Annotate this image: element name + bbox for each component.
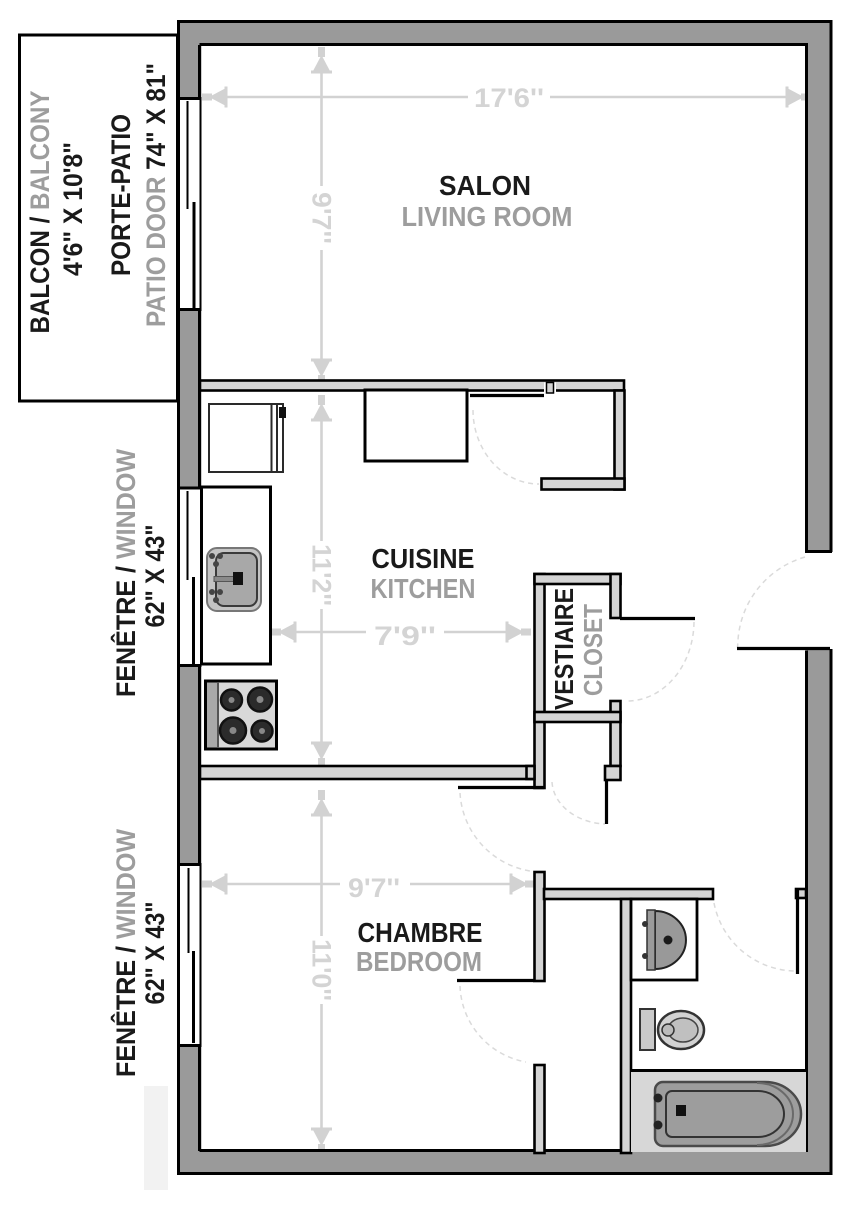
svg-text:PORTE-PATIO: PORTE-PATIO <box>106 114 136 276</box>
svg-text:11'2'': 11'2'' <box>307 544 337 606</box>
svg-text:FENÊTRE / WINDOW: FENÊTRE / WINDOW <box>110 829 141 1077</box>
svg-text:CLOSET: CLOSET <box>578 604 608 696</box>
svg-text:BALCON / BALCONY: BALCON / BALCONY <box>25 90 55 333</box>
svg-text:SALON: SALON <box>439 170 531 201</box>
svg-text:VESTIAIRE: VESTIAIRE <box>549 588 579 710</box>
svg-text:62" X 43": 62" X 43" <box>140 525 170 628</box>
svg-text:7'9'': 7'9'' <box>374 621 436 651</box>
svg-text:11'0'': 11'0'' <box>307 939 337 1001</box>
svg-text:17'6'': 17'6'' <box>474 83 544 113</box>
svg-text:9'7'': 9'7'' <box>307 192 337 244</box>
svg-text:CHAMBRE: CHAMBRE <box>358 917 483 948</box>
svg-text:PATIO DOOR 74" X 81": PATIO DOOR 74" X 81" <box>141 63 171 327</box>
svg-text:9'7'': 9'7'' <box>348 873 400 903</box>
svg-text:LIVING ROOM: LIVING ROOM <box>402 201 573 232</box>
svg-text:CUISINE: CUISINE <box>372 543 475 574</box>
svg-text:BEDROOM: BEDROOM <box>356 946 482 977</box>
svg-text:FENÊTRE / WINDOW: FENÊTRE / WINDOW <box>110 449 141 697</box>
svg-text:62" X 43": 62" X 43" <box>140 902 170 1005</box>
svg-text:4'6" X 10'8": 4'6" X 10'8" <box>58 142 88 276</box>
svg-text:KITCHEN: KITCHEN <box>371 573 476 604</box>
